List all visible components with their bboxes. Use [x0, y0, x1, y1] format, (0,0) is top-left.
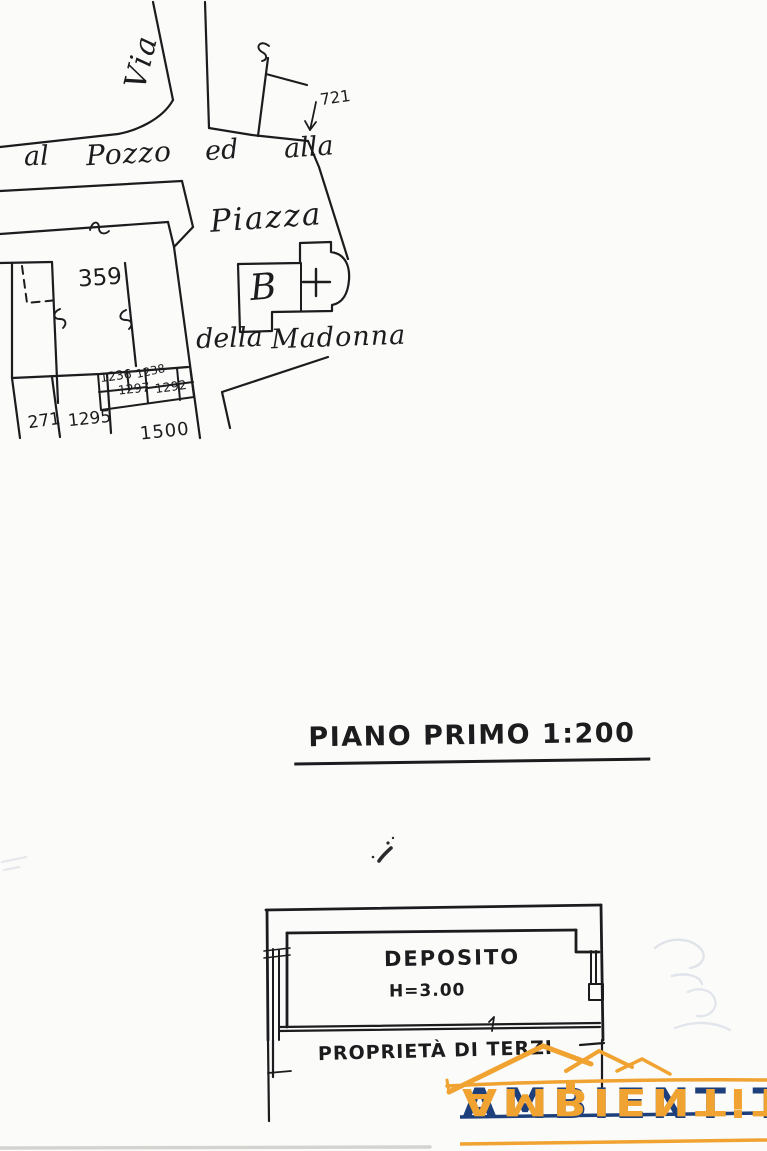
drawing-title: PIANO PRIMO 1:200 — [294, 718, 651, 766]
piazza-label: Piazza — [209, 199, 323, 238]
room-height-label: H=3.00 — [389, 982, 466, 1000]
logo-reflection-end: T — [752, 1080, 767, 1123]
scanned-page: Via al Pozzo ed alla Piazza della Madonn… — [0, 0, 767, 1151]
logo-reflection-main: AMBIENT — [462, 1080, 729, 1123]
logo-reflection-separator: : — [729, 1080, 753, 1123]
street-label-al: al — [24, 143, 50, 171]
parcel-number-359: 359 — [77, 265, 122, 291]
parcel-number-1500: 1500 — [139, 420, 190, 443]
parcel-number-721: 721 — [319, 88, 351, 108]
parcel-number-1297: 1297 — [117, 381, 150, 397]
logo-roofline-art — [0, 0, 767, 1151]
church-cross-icon — [303, 269, 330, 296]
logo-reflection-bar — [460, 1140, 767, 1144]
linework-layer — [0, 0, 767, 1151]
logo-i-dot — [566, 1083, 575, 1090]
della-label: della — [196, 324, 264, 353]
street-label-ed: ed — [204, 136, 239, 165]
street-label-alla: alla — [283, 132, 334, 162]
boundary-label-proprieta-di-terzi: PROPRIETÀ DI TERZI — [318, 1039, 553, 1064]
street-label-pozzo: Pozzo — [85, 138, 172, 170]
room-label-deposito: DEPOSITO — [384, 947, 520, 970]
logo-wordmark-reflection: AMBIENT:T — [462, 1083, 767, 1120]
street-label-via: Via — [121, 32, 163, 92]
madonna-label: Madonna — [271, 322, 407, 354]
church-letter: B — [248, 269, 278, 307]
parcel-number-1292: 1292 — [154, 379, 187, 396]
parcel-number-1238: 1238 — [135, 363, 166, 380]
parcel-number-1295: 1295 — [67, 409, 112, 430]
parcel-number-271: 271 — [27, 411, 62, 432]
